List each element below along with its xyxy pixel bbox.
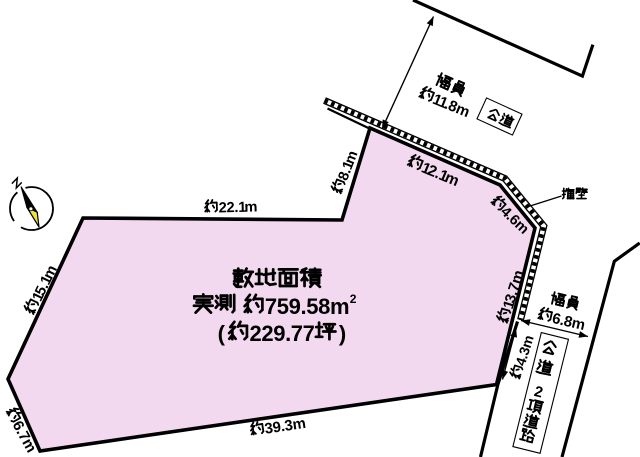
- svg-text:5: 5: [277, 294, 289, 319]
- svg-text:m: m: [244, 199, 257, 215]
- svg-text:7: 7: [291, 321, 303, 346]
- svg-text:7: 7: [303, 321, 315, 346]
- svg-text:(: (: [218, 321, 226, 346]
- svg-text:2: 2: [261, 321, 273, 346]
- svg-text:2: 2: [350, 292, 357, 306]
- svg-text:m: m: [330, 294, 350, 319]
- svg-text:9: 9: [273, 321, 285, 346]
- svg-text:5: 5: [306, 294, 318, 319]
- svg-text:2: 2: [249, 321, 261, 346]
- svg-text:8: 8: [318, 294, 330, 319]
- svg-text:): ): [339, 321, 346, 346]
- svg-text:9: 9: [289, 294, 301, 319]
- svg-text:m: m: [291, 415, 307, 434]
- svg-text:7: 7: [265, 294, 277, 319]
